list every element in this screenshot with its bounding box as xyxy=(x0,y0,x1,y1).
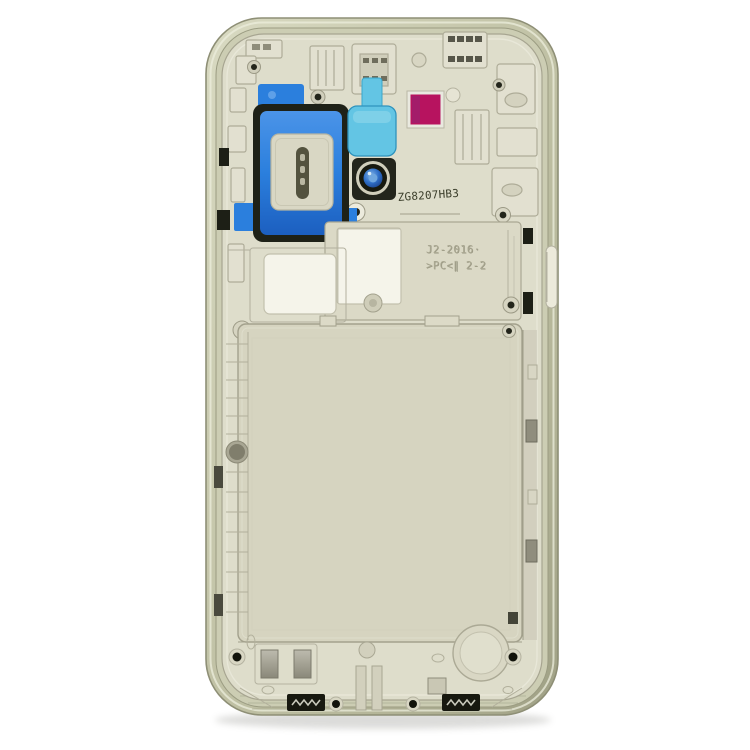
contact-pad xyxy=(294,650,311,678)
frame-clip xyxy=(214,466,223,488)
power-button xyxy=(546,246,557,308)
frame-clip xyxy=(508,612,518,624)
rail-slot xyxy=(526,420,537,442)
mold-text-line2: >PC<∥ 2-2 xyxy=(426,260,486,272)
water-damage-sticker xyxy=(407,91,444,128)
frame-clip xyxy=(523,228,533,244)
midframe-illustration: ZG8207HB3 J2-2016· J2-2016· >PC<∥ 2-2 >P… xyxy=(0,0,750,750)
mold-text-line1: J2-2016· xyxy=(426,244,481,256)
frame-clip xyxy=(219,148,229,166)
spring-connector-right xyxy=(442,694,480,711)
frame-clip xyxy=(523,292,533,308)
product-photo: ZG8207HB3 J2-2016· J2-2016· >PC<∥ 2-2 >P… xyxy=(0,0,750,750)
rear-camera-lens xyxy=(352,158,396,200)
battery-bay xyxy=(238,316,522,642)
frame-clip xyxy=(217,210,230,230)
earpiece-speaker-gasket xyxy=(253,104,349,242)
spring-connector-left xyxy=(287,694,325,711)
rail-slot xyxy=(526,540,537,562)
mid-plate-opening xyxy=(337,228,401,304)
frame-clip xyxy=(214,594,223,616)
contact-pad xyxy=(261,650,278,678)
